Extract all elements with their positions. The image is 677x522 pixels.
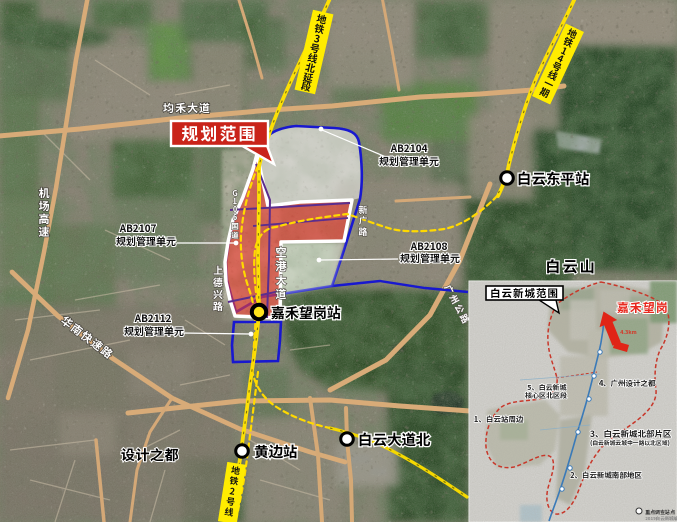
- svg-text:上德兴路: 上德兴路: [212, 262, 224, 313]
- svg-text:4、广州设计之都: 4、广州设计之都: [599, 378, 656, 389]
- svg-text:4.3km: 4.3km: [620, 328, 637, 336]
- svg-text:新广路: 新广路: [358, 203, 368, 238]
- svg-text:机场高速: 机场高速: [39, 185, 50, 240]
- svg-text:白云山: 白云山: [545, 256, 596, 277]
- svg-text:(白云新城云城中一路以北区域): (白云新城云城中一路以北区域): [590, 438, 670, 447]
- svg-text:2、白云新城南部地区: 2、白云新城南部地区: [570, 470, 642, 481]
- svg-text:嘉禾望岗站: 嘉禾望岗站: [271, 303, 341, 323]
- svg-text:规划管理单元: 规划管理单元: [379, 153, 439, 168]
- svg-text:空港大道: 空港大道: [276, 244, 288, 302]
- svg-text:均禾大道: 均禾大道: [163, 100, 211, 116]
- svg-text:白云新城范围: 白云新城范围: [490, 286, 559, 301]
- svg-text:1、白云站周边: 1、白云站周边: [474, 414, 524, 425]
- svg-text:核心区北区段: 核心区北区段: [525, 391, 567, 401]
- svg-text:设计之都: 设计之都: [121, 445, 179, 465]
- svg-text:黄边站: 黄边站: [254, 441, 298, 462]
- svg-text:规划范围: 规划范围: [182, 120, 258, 145]
- svg-text:白云东平站: 白云东平站: [517, 168, 590, 189]
- svg-text:2019白云新城编制组: 2019白云新城编制组: [644, 515, 677, 522]
- svg-text:规划管理单元: 规划管理单元: [124, 323, 184, 338]
- svg-text:重点调查站点: 重点调查站点: [645, 509, 676, 516]
- svg-text:白云大道北: 白云大道北: [358, 429, 431, 450]
- svg-text:规划管理单元: 规划管理单元: [400, 250, 460, 265]
- svg-text:规划管理单元: 规划管理单元: [116, 233, 176, 248]
- svg-text:嘉禾望岗: 嘉禾望岗: [617, 299, 669, 316]
